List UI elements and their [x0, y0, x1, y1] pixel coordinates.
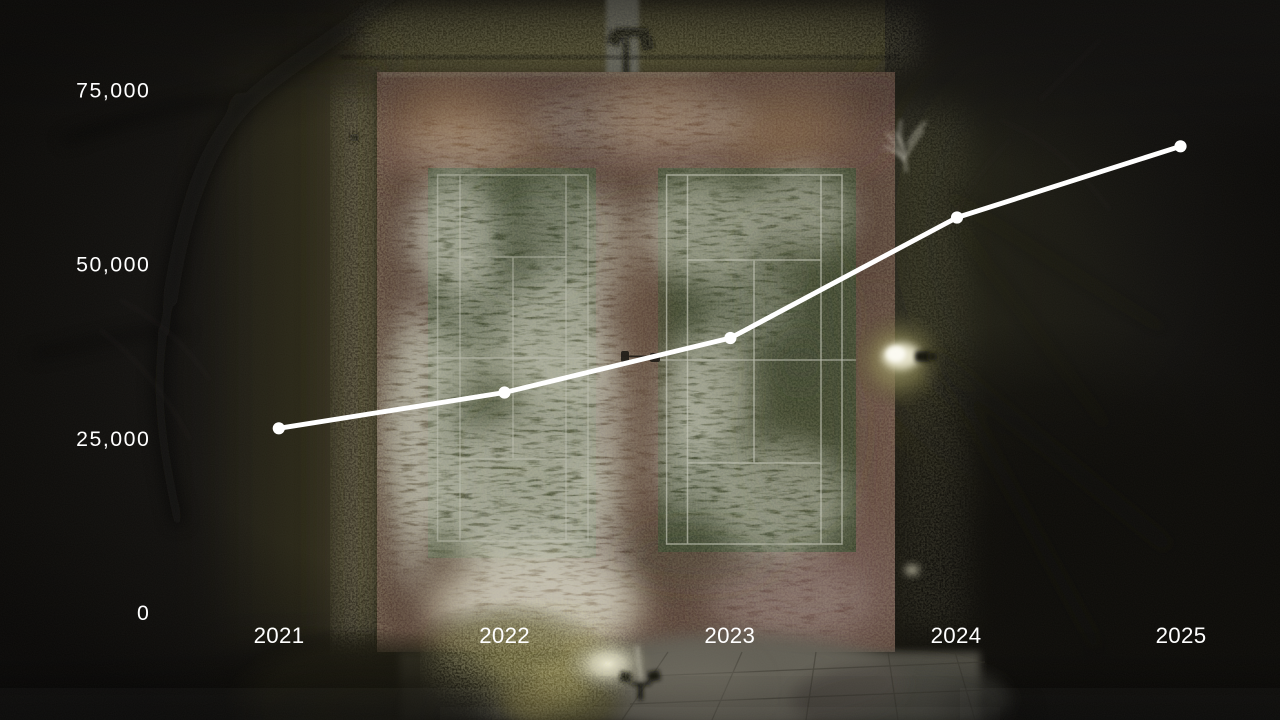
svg-text:2025: 2025	[1156, 623, 1207, 648]
svg-text:2021: 2021	[254, 623, 305, 648]
svg-text:0: 0	[137, 601, 150, 625]
svg-text:2024: 2024	[931, 623, 982, 648]
svg-text:75,000: 75,000	[76, 78, 150, 102]
svg-text:25,000: 25,000	[76, 427, 150, 451]
svg-text:50,000: 50,000	[76, 253, 150, 277]
svg-text:2022: 2022	[479, 623, 530, 648]
svg-text:2023: 2023	[704, 623, 755, 648]
